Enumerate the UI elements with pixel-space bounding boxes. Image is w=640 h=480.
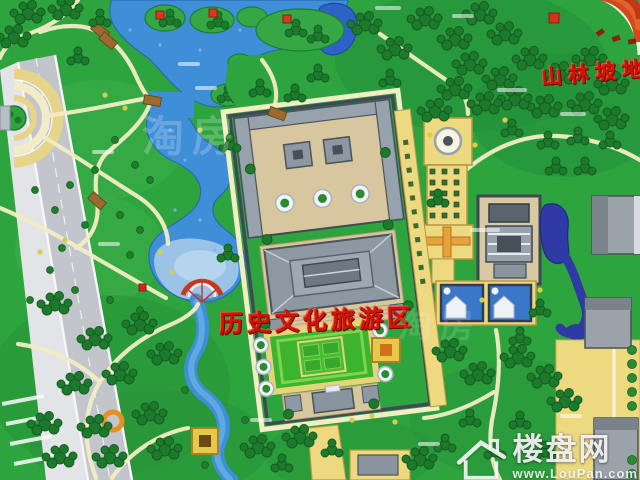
- temple-complex: [223, 89, 447, 429]
- watermark-brand: 楼盘网: [513, 434, 612, 465]
- watermark: 楼盘网 www.LouPan.com: [453, 434, 638, 480]
- house-icon: [453, 434, 509, 480]
- site-plan-map: 历史文化旅游区 山林坡地 淘房 淘房 楼盘网 www.LouPan.com: [0, 0, 640, 480]
- watermark-site: www.LouPan.com: [513, 467, 638, 480]
- region-label-historic-culture-zone: 历史文化旅游区: [218, 298, 415, 340]
